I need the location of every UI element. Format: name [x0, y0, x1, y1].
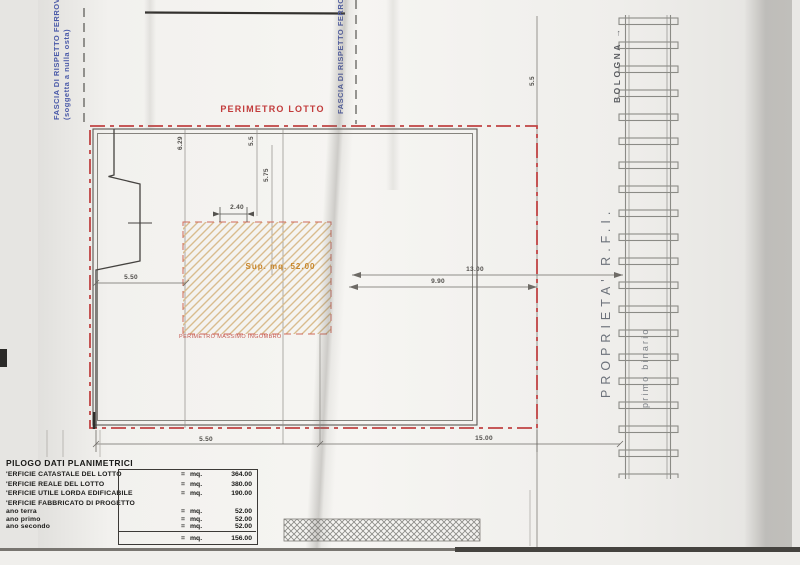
perimetro-massimo-label: PERIMETRO MASSIMO INGOMBRO	[179, 334, 282, 340]
perimetro-lotto-label: PERIMETRO LOTTO	[205, 104, 340, 114]
project-building-footprint	[183, 222, 331, 334]
dim-13-00-label: 13.00	[455, 266, 495, 273]
table-title: PILOGO DATI PLANIMETRICI	[6, 458, 258, 468]
scan-right-shadow	[744, 0, 792, 551]
fascia-left-line2: (soggetta a nulla osta)	[62, 0, 72, 120]
scan-left-mark	[0, 349, 7, 367]
railway-sleepers	[618, 16, 680, 478]
table-values-box	[118, 469, 258, 545]
dim-15-00-label: 15.00	[464, 435, 504, 442]
railway-track	[618, 15, 680, 479]
dim-bottom-line	[93, 430, 623, 452]
table-total-rule	[118, 531, 256, 532]
scan-right-edge	[792, 0, 800, 565]
scan-crease-faint-left	[144, 0, 156, 130]
dim-5-50-left-label: 5.50	[114, 274, 148, 281]
sup-fabbricato-label: Sup. mq. 52.00	[233, 262, 328, 271]
scanned-site-plan: FASCIA DI RISPETTO FERROVIA (soggetta a …	[0, 0, 800, 565]
dati-planimetrici-table: PILOGO DATI PLANIMETRICI 'ERFICIE CATAST…	[6, 458, 258, 544]
dim-5-50-bottom-label: 5.50	[188, 436, 224, 443]
scan-bottom-paper	[0, 551, 800, 565]
scan-crease-faint-mid	[386, 0, 400, 190]
scan-top-mark	[145, 13, 345, 14]
fascia-left-line1: FASCIA DI RISPETTO FERROVIA	[52, 0, 62, 120]
dim-2-40-label: 2.40	[222, 204, 252, 211]
scan-bottom-edge-dark	[455, 547, 800, 552]
dim-9-90-label: 9.90	[418, 278, 458, 285]
